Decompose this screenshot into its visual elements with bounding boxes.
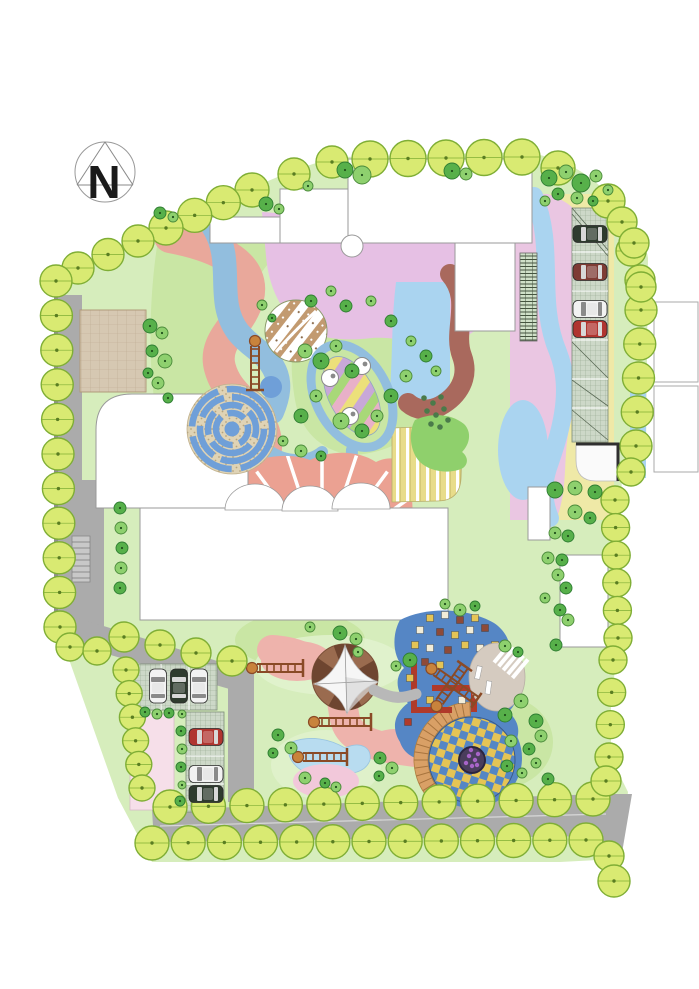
car-windshield (581, 265, 586, 279)
tree-center-dot (435, 370, 437, 372)
tree-center-dot (565, 171, 567, 173)
blue-blob (498, 400, 548, 500)
tree-center-dot (565, 587, 567, 589)
tree-center-dot (309, 626, 311, 628)
tree-center-dot (554, 489, 556, 491)
tree-center-dot (159, 212, 161, 214)
tree-center-dot (592, 200, 594, 202)
tree-center-dot (120, 567, 122, 569)
tree-center-dot (379, 757, 381, 759)
ladder-platform (309, 717, 320, 728)
tree-center-dot (355, 638, 357, 640)
tree-center-dot (122, 635, 125, 638)
tree-center-dot (612, 879, 615, 882)
stone-dot (433, 412, 439, 418)
stone-dot (438, 394, 444, 400)
car-icon (573, 264, 607, 281)
tree-center-dot (55, 314, 58, 317)
tree-center-dot (335, 345, 337, 347)
tree-center-dot (119, 587, 121, 589)
tree-center-dot (320, 360, 322, 362)
tree-center-dot (140, 786, 143, 789)
tree-center-dot (207, 805, 210, 808)
car-roof (587, 266, 597, 278)
tree-center-dot (304, 777, 306, 779)
tree-center-dot (504, 645, 506, 647)
tree-center-dot (119, 507, 121, 509)
tree-center-dot (614, 526, 617, 529)
tree-center-dot (410, 340, 412, 342)
tree-center-dot (399, 801, 402, 804)
tree-center-dot (437, 800, 440, 803)
tree-center-dot (261, 304, 263, 306)
car-windshield (192, 677, 206, 682)
tree-center-dot (57, 487, 60, 490)
light-blue-zone (389, 282, 450, 400)
tree-center-dot (557, 193, 559, 195)
stone-dot (428, 421, 434, 427)
tree-center-dot (106, 253, 109, 256)
car-roof (203, 788, 213, 800)
tree-center-dot (574, 511, 576, 513)
tree-center-dot (606, 199, 609, 202)
tree-center-dot (474, 605, 476, 607)
flower-dot (469, 748, 473, 752)
tree-center-dot (193, 214, 196, 217)
tree-center-dot (395, 665, 397, 667)
mosaic-tile (427, 615, 434, 622)
tree-center-dot (55, 349, 58, 352)
car-rear-window (192, 694, 206, 698)
tree-center-dot (278, 208, 280, 210)
ladder-platform (250, 336, 261, 347)
tree-center-dot (535, 762, 537, 764)
tree-center-dot (567, 619, 569, 621)
tree-center-dot (320, 455, 322, 457)
tree-center-dot (521, 772, 523, 774)
mosaic-tile (442, 612, 449, 619)
tree-center-dot (168, 712, 170, 714)
tree-center-dot (124, 668, 127, 671)
tree-center-dot (444, 603, 446, 605)
stone-dot (445, 417, 451, 423)
tree-center-dot (131, 716, 134, 719)
tree-center-dot (629, 470, 632, 473)
ladder-platform (247, 663, 258, 674)
tree-center-dot (607, 189, 609, 191)
brick-plaza (80, 310, 146, 392)
compass-label: N (87, 156, 120, 208)
car-icon (189, 786, 223, 803)
tree-center-dot (265, 203, 267, 205)
tree-center-dot (440, 839, 443, 842)
flower-dot (464, 761, 468, 765)
tree-center-dot (147, 372, 149, 374)
tree-center-dot (594, 491, 596, 493)
tree-center-dot (361, 430, 363, 432)
tree-center-dot (121, 547, 123, 549)
tree-center-dot (68, 645, 71, 648)
tree-center-dot (330, 290, 332, 292)
tree-center-dot (403, 840, 406, 843)
car-rear-window (598, 322, 602, 336)
tree-center-dot (610, 691, 613, 694)
tree-center-dot (589, 517, 591, 519)
car-rear-window (598, 265, 602, 279)
tree-center-dot (58, 591, 61, 594)
table-dot (331, 374, 336, 379)
tree-center-dot (322, 802, 325, 805)
tree-center-dot (512, 839, 515, 842)
tree-center-dot (95, 649, 98, 652)
tree-center-dot (390, 395, 392, 397)
mosaic-tile (462, 642, 469, 649)
tree-center-dot (335, 786, 337, 788)
table-dot (351, 412, 356, 417)
car-windshield (172, 677, 186, 682)
tree-center-dot (611, 658, 614, 661)
mosaic-tile (452, 632, 459, 639)
tree-center-dot (54, 279, 57, 282)
tree-center-dot (637, 376, 640, 379)
tree-center-dot (259, 841, 262, 844)
flower-dot (470, 764, 474, 768)
tree-center-dot (520, 700, 522, 702)
car-icon (189, 766, 223, 783)
tree-center-dot (567, 535, 569, 537)
mosaic-tile (482, 625, 489, 632)
tree-center-dot (310, 300, 312, 302)
mosaic-tile (472, 615, 479, 622)
tree-center-dot (361, 802, 364, 805)
tree-center-dot (444, 156, 447, 159)
tree-center-dot (476, 839, 479, 842)
tree-center-dot (547, 778, 549, 780)
tree-center-dot (604, 779, 607, 782)
tree-center-dot (167, 397, 169, 399)
car-icon (573, 321, 607, 338)
tree-center-dot (405, 375, 407, 377)
tree-center-dot (168, 805, 171, 808)
tree-center-dot (300, 450, 302, 452)
car-icon (171, 669, 188, 703)
car-roof (173, 683, 185, 693)
building (280, 189, 352, 243)
landscape-site-plan: N (0, 0, 699, 989)
tree-center-dot (330, 160, 333, 163)
car-windshield (581, 322, 586, 336)
tree-center-dot (295, 840, 298, 843)
tree-center-dot (544, 597, 546, 599)
car-rear-window (214, 730, 218, 744)
car-rear-window (172, 694, 186, 698)
mosaic-tile (427, 645, 434, 652)
north-compass: N (75, 142, 135, 208)
mosaic-tile (437, 629, 444, 636)
tree-center-dot (548, 177, 550, 179)
tree-center-dot (557, 574, 559, 576)
tree-center-dot (158, 643, 161, 646)
tree-center-dot (376, 415, 378, 417)
tree-center-dot (544, 200, 546, 202)
tree-center-dot (194, 651, 197, 654)
table-icon (322, 370, 339, 387)
tree-center-dot (271, 317, 273, 319)
mosaic-tile (457, 617, 464, 624)
building-notch (341, 235, 363, 257)
tree-center-dot (548, 839, 551, 842)
tree-center-dot (250, 188, 253, 191)
tree-center-dot (553, 798, 556, 801)
tree-center-dot (638, 342, 641, 345)
car-roof (587, 303, 597, 315)
car-roof (587, 323, 597, 335)
tree-center-dot (136, 239, 139, 242)
tree-center-dot (528, 748, 530, 750)
tree-center-dot (616, 636, 619, 639)
tree-center-dot (149, 325, 151, 327)
tree-center-dot (517, 651, 519, 653)
building (560, 555, 608, 647)
tree-center-dot (506, 765, 508, 767)
mosaic-tile (412, 642, 419, 649)
tree-center-dot (134, 739, 137, 742)
tree-center-dot (56, 418, 59, 421)
stone-dot (441, 406, 447, 412)
tree-center-dot (554, 532, 556, 534)
tree-center-dot (56, 383, 59, 386)
tree-center-dot (179, 800, 181, 802)
car-icon (191, 669, 208, 703)
tree-center-dot (459, 609, 461, 611)
tree-center-dot (451, 170, 453, 172)
tree-center-dot (636, 410, 639, 413)
tree-center-dot (510, 740, 512, 742)
tree-center-dot (607, 755, 610, 758)
tree-center-dot (180, 766, 182, 768)
tree-center-dot (378, 775, 380, 777)
tree-center-dot (315, 395, 317, 397)
stone-dot (430, 400, 436, 406)
tree-center-dot (164, 360, 166, 362)
tree-center-dot (482, 156, 485, 159)
mosaic-tile (417, 627, 424, 634)
tree-center-dot (58, 556, 61, 559)
tree-center-dot (172, 216, 174, 218)
tree-center-dot (230, 659, 233, 662)
tree-center-dot (559, 609, 561, 611)
car-rear-window (598, 227, 602, 241)
car-icon (189, 729, 223, 746)
tree-center-dot (351, 370, 353, 372)
maze-entry-ball (260, 376, 282, 398)
tree-center-dot (584, 838, 587, 841)
tree-center-dot (186, 841, 189, 844)
tree-center-dot (161, 332, 163, 334)
tree-center-dot (277, 734, 279, 736)
tree-center-dot (607, 854, 610, 857)
road-vertical (228, 668, 254, 802)
mosaic-tile (445, 647, 452, 654)
maze-center (225, 422, 240, 437)
tree-center-dot (425, 355, 427, 357)
tree-center-dot (504, 714, 506, 716)
tree-center-dot (620, 220, 623, 223)
car-windshield (197, 767, 202, 781)
tree-center-dot (284, 803, 287, 806)
tree-center-dot (304, 350, 306, 352)
table-dot (363, 362, 368, 367)
car-roof (587, 228, 597, 240)
stone-dot (424, 408, 430, 414)
car-roof (203, 731, 213, 743)
car-windshield (197, 787, 202, 801)
tree-center-dot (76, 266, 79, 269)
car-windshield (581, 302, 586, 316)
car-windshield (151, 677, 165, 682)
tree-center-dot (223, 841, 226, 844)
tree-center-dot (595, 175, 597, 177)
tree-center-dot (181, 748, 183, 750)
tree-center-dot (290, 747, 292, 749)
flower-dot (475, 763, 479, 767)
stone-dot (437, 424, 443, 430)
tree-center-dot (282, 440, 284, 442)
mosaic-tile (407, 675, 414, 682)
car-roof (193, 683, 205, 693)
tree-center-dot (57, 522, 60, 525)
building-main (140, 508, 448, 620)
tree-center-dot (476, 799, 479, 802)
tree-center-dot (555, 644, 557, 646)
building (210, 217, 280, 243)
car-rear-window (151, 694, 165, 698)
tree-center-dot (613, 498, 616, 501)
building-offsite (654, 386, 698, 472)
tree-center-dot (520, 155, 523, 158)
tree-center-dot (357, 651, 359, 653)
car-roof (152, 683, 164, 693)
mosaic-tile (467, 627, 474, 634)
tree-center-dot (370, 300, 372, 302)
tree-center-dot (615, 581, 618, 584)
tree-center-dot (391, 767, 393, 769)
car-rear-window (598, 302, 602, 316)
tree-center-dot (465, 173, 467, 175)
building (528, 487, 550, 540)
tree-center-dot (156, 713, 158, 715)
tree-center-dot (361, 174, 363, 176)
tree-center-dot (128, 692, 131, 695)
tree-center-dot (300, 415, 302, 417)
tree-center-dot (406, 157, 409, 160)
tree-center-dot (514, 799, 517, 802)
tree-center-dot (157, 382, 159, 384)
tree-center-dot (340, 420, 342, 422)
tree-center-dot (561, 559, 563, 561)
tree-center-dot (639, 285, 642, 288)
tree-center-dot (307, 185, 309, 187)
building (455, 243, 515, 331)
tree-center-dot (150, 841, 153, 844)
car-windshield (197, 730, 202, 744)
tree-center-dot (137, 763, 140, 766)
tree-center-dot (222, 201, 225, 204)
tree-center-dot (540, 735, 542, 737)
car-rear-window (214, 767, 218, 781)
tree-center-dot (272, 752, 274, 754)
tree-center-dot (409, 659, 411, 661)
tree-center-dot (616, 609, 619, 612)
car-icon (150, 669, 167, 703)
building-offsite (654, 302, 698, 382)
tree-center-dot (331, 840, 334, 843)
tree-center-dot (390, 320, 392, 322)
mosaic-tile (405, 719, 412, 726)
tree-center-dot (615, 554, 618, 557)
tree-center-dot (324, 782, 326, 784)
tree-center-dot (120, 527, 122, 529)
tree-center-dot (180, 730, 182, 732)
car-windshield (581, 227, 586, 241)
stone-dot (421, 395, 427, 401)
tree-center-dot (181, 784, 183, 786)
tree-center-dot (151, 350, 153, 352)
tree-center-dot (345, 305, 347, 307)
tree-center-dot (634, 444, 637, 447)
tree-center-dot (632, 241, 635, 244)
tree-center-dot (339, 632, 341, 634)
car-icon (573, 301, 607, 318)
flower-dot (467, 754, 471, 758)
tree-center-dot (580, 182, 582, 184)
tree-center-dot (574, 487, 576, 489)
car-roof (203, 768, 213, 780)
tree-center-dot (164, 226, 167, 229)
tree-center-dot (535, 720, 537, 722)
tree-center-dot (609, 723, 612, 726)
flower-dot (473, 758, 477, 762)
flower-dot (476, 752, 480, 756)
kiosk (576, 444, 618, 481)
car-icon (573, 226, 607, 243)
tree-center-dot (368, 157, 371, 160)
tree-center-dot (547, 557, 549, 559)
tree-center-dot (576, 197, 578, 199)
tree-center-dot (639, 308, 642, 311)
tree-center-dot (292, 172, 295, 175)
mosaic-tile (437, 662, 444, 669)
tree-center-dot (344, 169, 346, 171)
tree-center-dot (245, 804, 248, 807)
tree-center-dot (367, 840, 370, 843)
car-rear-window (214, 787, 218, 801)
pergola-strip (520, 253, 537, 341)
tree-center-dot (58, 625, 61, 628)
tree-center-dot (144, 711, 146, 713)
tree-center-dot (591, 797, 594, 800)
tree-center-dot (181, 713, 183, 715)
tree-center-dot (56, 452, 59, 455)
